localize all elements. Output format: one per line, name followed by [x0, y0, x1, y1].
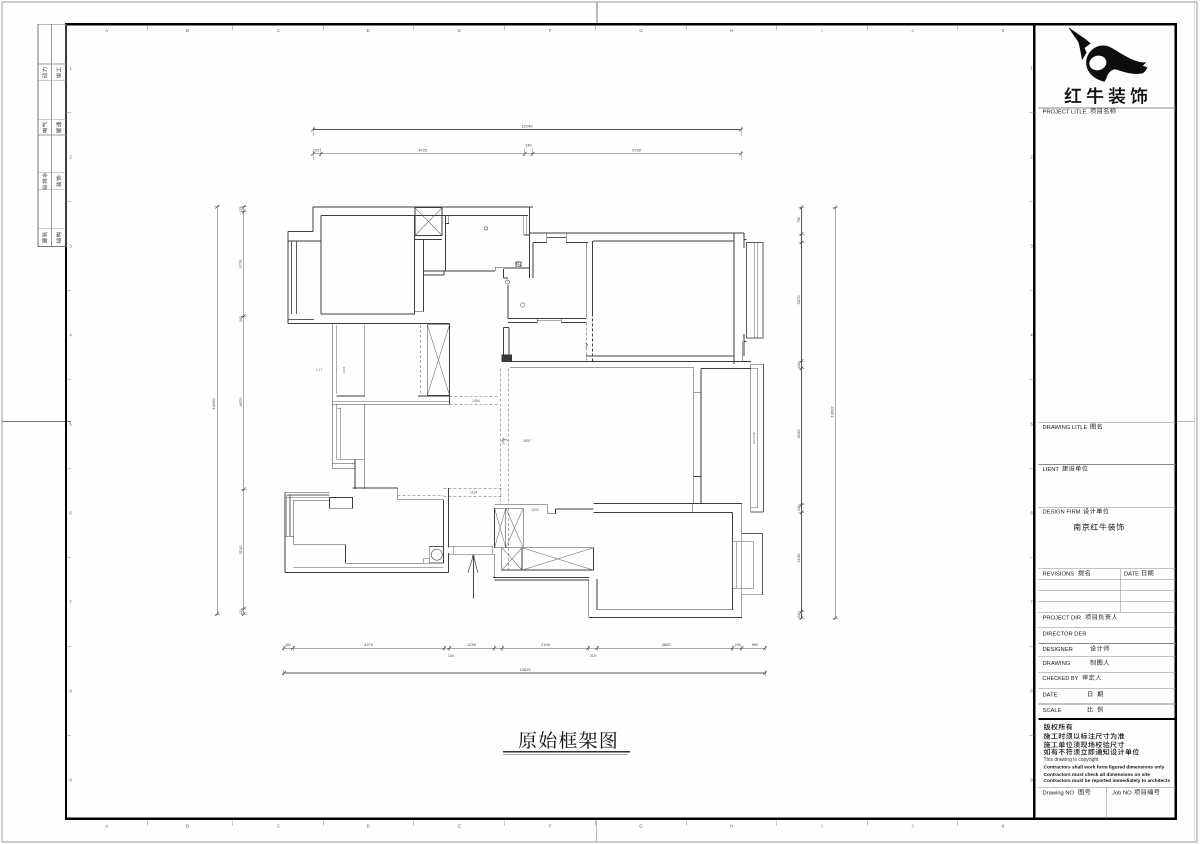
- svg-text:CHECKED BY: CHECKED BY: [1043, 676, 1079, 682]
- svg-text:PROJECT DIR: PROJECT DIR: [1043, 616, 1082, 622]
- svg-text:DRAWING: DRAWING: [1043, 661, 1071, 667]
- svg-text:590: 590: [752, 643, 758, 647]
- svg-text:240: 240: [797, 612, 801, 618]
- svg-text:I: I: [821, 824, 822, 829]
- svg-text:1250: 1250: [467, 642, 477, 647]
- svg-text:175: 175: [239, 207, 243, 213]
- svg-text:3370: 3370: [796, 295, 801, 305]
- svg-text:G: G: [639, 824, 642, 829]
- svg-text:REVISIONS: REVISIONS: [1043, 572, 1075, 578]
- svg-text:A: A: [105, 824, 108, 829]
- svg-text:3210: 3210: [238, 545, 243, 555]
- svg-text:K: K: [1002, 28, 1005, 33]
- svg-text:E: E: [458, 824, 461, 829]
- svg-text:13602: 13602: [829, 406, 834, 418]
- svg-text:C: C: [277, 824, 280, 829]
- svg-text:150: 150: [285, 643, 291, 647]
- svg-text:219: 219: [590, 654, 596, 658]
- svg-text:3100: 3100: [796, 429, 801, 439]
- svg-text:B: B: [186, 28, 189, 33]
- svg-text:F: F: [549, 28, 552, 33]
- svg-text:12140: 12140: [521, 123, 533, 128]
- svg-text:DRAWING LITLE: DRAWING LITLE: [1043, 425, 1088, 431]
- svg-text:2130: 2130: [796, 553, 801, 563]
- svg-text:3650: 3650: [662, 642, 672, 647]
- svg-text:D: D: [367, 28, 370, 33]
- svg-text:240: 240: [735, 643, 741, 647]
- svg-text:1114: 1114: [470, 491, 477, 495]
- svg-text:3697: 3697: [523, 439, 531, 443]
- svg-text:4570: 4570: [238, 397, 243, 407]
- svg-text:G: G: [639, 28, 642, 33]
- svg-text:H: H: [730, 28, 733, 33]
- svg-text:A: A: [105, 28, 108, 33]
- svg-text:Contractors must be reported i: Contractors must be reported immediately…: [1044, 778, 1171, 784]
- svg-text:2494: 2494: [342, 366, 346, 373]
- svg-text:900*1500: 900*1500: [752, 432, 756, 444]
- svg-text:DIRECTOR DER: DIRECTOR DER: [1043, 632, 1087, 638]
- svg-text:Job NO: Job NO: [1112, 791, 1132, 797]
- svg-text:13625: 13625: [519, 667, 531, 672]
- svg-text:PROJECT LITLE: PROJECT LITLE: [1043, 110, 1087, 116]
- svg-text:SCALE: SCALE: [1043, 708, 1062, 714]
- svg-text:K: K: [1002, 824, 1005, 829]
- svg-text:DESIGNER: DESIGNER: [1043, 647, 1073, 653]
- svg-text:2494: 2494: [472, 399, 480, 403]
- svg-text:E: E: [458, 28, 461, 33]
- svg-text:4270: 4270: [364, 642, 374, 647]
- svg-text:D: D: [367, 824, 370, 829]
- svg-text:240: 240: [526, 143, 532, 147]
- svg-text:1.17: 1.17: [316, 368, 322, 372]
- svg-text:240: 240: [239, 316, 243, 322]
- svg-text:2775: 2775: [238, 259, 243, 269]
- svg-text:Contractors must check all dim: Contractors must check all dimensions on…: [1044, 772, 1151, 778]
- svg-text:DATE: DATE: [1043, 693, 1058, 699]
- svg-text:DATE: DATE: [1124, 572, 1139, 578]
- svg-text:120: 120: [239, 609, 243, 615]
- svg-text:2109: 2109: [541, 642, 551, 647]
- svg-text:4725: 4725: [418, 148, 428, 153]
- svg-text:F: F: [549, 824, 552, 829]
- svg-text:240: 240: [797, 362, 801, 368]
- svg-text:Drawing NO: Drawing NO: [1043, 791, 1075, 797]
- svg-text:H: H: [730, 824, 733, 829]
- svg-text:I: I: [821, 28, 822, 33]
- svg-text:LIENT: LIENT: [1043, 467, 1060, 473]
- svg-text:5730: 5730: [632, 148, 642, 153]
- svg-text:Contractors shall work form fi: Contractors shall work form figured dime…: [1044, 765, 1165, 771]
- svg-text:B: B: [186, 824, 189, 829]
- svg-text:DESIGN FIRM: DESIGN FIRM: [1043, 510, 1081, 516]
- svg-text:J: J: [911, 28, 913, 33]
- svg-text:725: 725: [313, 149, 319, 153]
- svg-text:750: 750: [797, 217, 801, 223]
- svg-text:1202: 1202: [531, 508, 538, 512]
- svg-text:14160: 14160: [211, 398, 216, 410]
- svg-text:This drawing is copyright: This drawing is copyright: [1044, 757, 1100, 763]
- svg-text:240: 240: [797, 505, 801, 511]
- svg-text:J: J: [911, 824, 913, 829]
- svg-text:140: 140: [448, 654, 454, 658]
- svg-text:C: C: [277, 28, 280, 33]
